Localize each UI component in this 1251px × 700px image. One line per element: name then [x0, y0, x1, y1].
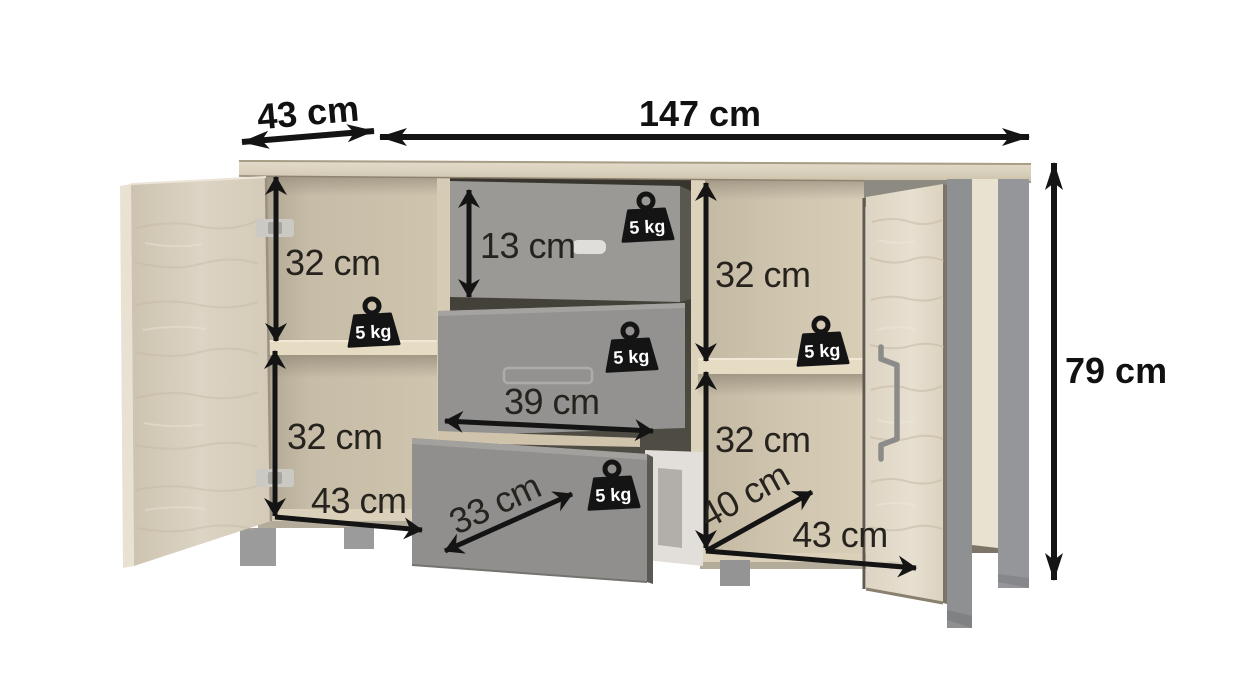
svg-text:43 cm: 43 cm [311, 480, 407, 521]
svg-text:5 kg: 5 kg [629, 216, 666, 238]
svg-text:13 cm: 13 cm [480, 225, 576, 266]
svg-text:5 kg: 5 kg [613, 346, 650, 368]
svg-text:32 cm: 32 cm [285, 242, 381, 283]
svg-text:79 cm: 79 cm [1065, 350, 1167, 391]
svg-text:147 cm: 147 cm [639, 93, 761, 134]
svg-text:32 cm: 32 cm [287, 416, 383, 457]
svg-text:43 cm: 43 cm [792, 514, 888, 555]
svg-text:32 cm: 32 cm [715, 419, 811, 460]
svg-text:39 cm: 39 cm [504, 381, 600, 422]
svg-text:5 kg: 5 kg [355, 321, 392, 343]
svg-text:5 kg: 5 kg [595, 484, 632, 506]
svg-text:32 cm: 32 cm [715, 254, 811, 295]
svg-text:5 kg: 5 kg [804, 340, 841, 362]
